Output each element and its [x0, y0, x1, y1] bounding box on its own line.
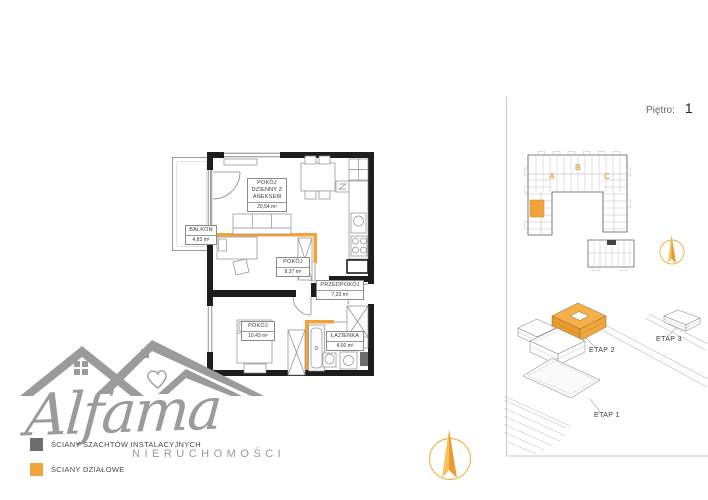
site-plan-3d [504, 303, 708, 454]
etap2-label: ETAP 2 [589, 347, 615, 354]
washing-machine [340, 352, 357, 369]
etap1-leader [590, 399, 600, 412]
bedroom2-door [293, 297, 311, 315]
floor-label: Piętro: [646, 105, 675, 116]
chair [305, 156, 316, 164]
floor-value: 1 [685, 100, 693, 116]
room-name: BALKON [186, 226, 216, 234]
compass-needle-dark [672, 235, 677, 263]
room-label-bedroom2: POKÓJ 10,43 m² [241, 321, 275, 341]
room-label-bathroom: ŁAZIENKA 4,00 m² [326, 331, 364, 351]
dining-table [301, 163, 335, 191]
building-key-plan: A B C [525, 152, 635, 271]
installation-shaft [360, 352, 368, 366]
room-area: 20,54 m² [248, 202, 286, 211]
partition-color-swatch [30, 463, 43, 476]
chair [319, 156, 330, 164]
panel-border [507, 97, 708, 456]
room-name: POKÓJ [277, 258, 309, 266]
legend-row-partition: ŚCIANY DZIAŁOWE [30, 463, 125, 476]
room-name: PRZEDPOKÓJ [317, 281, 363, 289]
compass-needle-light [668, 235, 672, 263]
compass-main [430, 429, 471, 480]
armchair [233, 259, 249, 275]
room-area: 4,00 m² [327, 341, 363, 350]
balcony-door [213, 172, 240, 199]
sofa [233, 214, 291, 234]
shaft-legend-label: ŚCIANY SZACHTÓW INSTALACYJNYCH [51, 440, 201, 449]
highlighted-unit [530, 200, 544, 217]
room-area: 8,37 m² [277, 267, 309, 276]
room-label-living: POKÓJ DZIENNY Z ANEKSEM 20,54 m² [247, 178, 287, 212]
section-b-label: B [575, 163, 581, 172]
etap3-label: ETAP 3 [656, 336, 682, 343]
shaft-color-swatch [30, 438, 43, 451]
room-name: POKÓJ DZIENNY Z ANEKSEM [248, 179, 286, 201]
tv-bench [224, 159, 257, 165]
compass-needle-light [442, 429, 449, 478]
compass-small [660, 235, 684, 264]
section-a-label: A [549, 172, 555, 181]
etap1-label: ETAP 1 [594, 412, 620, 419]
etap3-leader [668, 328, 676, 336]
room-label-bedroom1: POKÓJ 8,37 m² [276, 257, 310, 277]
compass-needle-dark [449, 429, 457, 478]
section-c-label: C [604, 172, 610, 181]
chair [319, 191, 330, 199]
legend-row-shaft: ŚCIANY SZACHTÓW INSTALACYJNYCH [30, 438, 201, 451]
room-area: 4,83 m² [186, 235, 216, 244]
room-area: 7,23 m² [317, 290, 363, 299]
pillow [219, 239, 227, 251]
rug [244, 364, 266, 373]
roof-window [74, 361, 88, 375]
second-building [588, 240, 634, 271]
room-name: POKÓJ [242, 322, 274, 330]
parking-rows [504, 396, 570, 454]
chair [305, 191, 316, 199]
chimney [141, 349, 149, 358]
room-name: ŁAZIENKA [327, 332, 363, 340]
etap3-building [664, 310, 700, 331]
floor-header: Piętro: 1 [646, 100, 693, 116]
partition-legend-label: ŚCIANY DZIAŁOWE [51, 465, 125, 474]
room-label-hall: PRZEDPOKÓJ 7,23 m² [316, 280, 364, 300]
fridge [347, 260, 368, 273]
room-area: 10,43 m² [242, 331, 274, 340]
room-label-balcony: BALKON 4,83 m² [185, 225, 217, 245]
page: A B C [0, 0, 708, 500]
